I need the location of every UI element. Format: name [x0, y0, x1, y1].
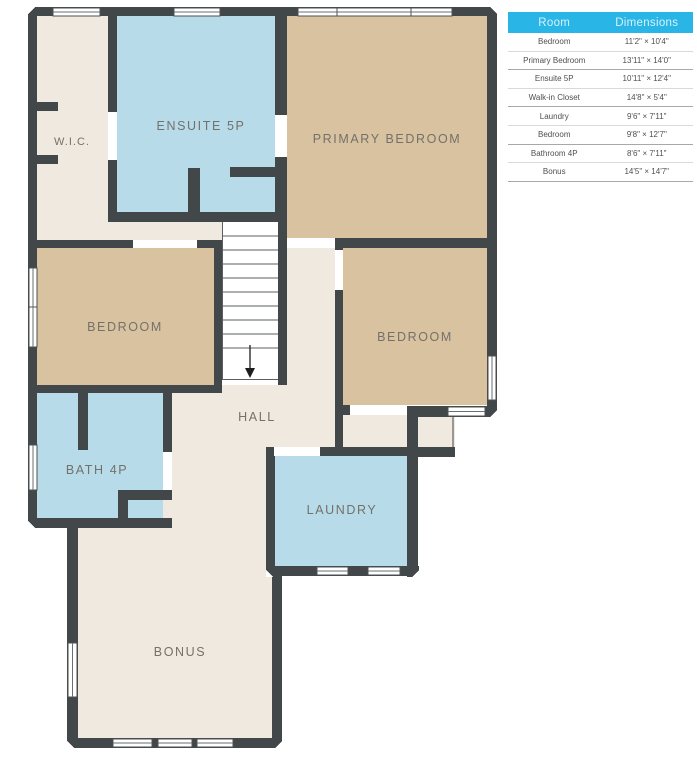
label-wic: W.I.C.	[54, 136, 90, 148]
table-row: Laundry 9'6" × 7'11"	[508, 107, 693, 126]
wall-wic-ensuite	[108, 7, 117, 213]
dimensions-table: Room Dimensions Bedroom 11'2" × 10'4" Pr…	[508, 12, 693, 182]
row-dimensions: 9'6" × 7'11"	[601, 112, 694, 121]
table-row: Ensuite 5P 10'11" × 12'4"	[508, 70, 693, 89]
floor-notch-opening	[163, 500, 172, 518]
wall-laundry-left	[266, 447, 275, 577]
wall-wic-stub-b	[33, 155, 58, 164]
floor-closet-b	[418, 417, 455, 450]
row-dimensions: 8'6" × 7'11"	[601, 149, 694, 158]
door-bedroom-right	[335, 250, 343, 290]
floor-wic	[37, 16, 108, 240]
wall-laundry-top-b	[320, 447, 419, 456]
floor-hall-column	[287, 248, 335, 448]
wall-bath-notch-top	[118, 490, 172, 500]
row-room: Bonus	[508, 167, 601, 176]
wall-laundry-right	[407, 407, 418, 577]
wall-wic-stub-a	[33, 102, 58, 111]
wall-stairwell-right	[278, 212, 287, 385]
label-hall: HALL	[238, 410, 276, 424]
label-bath: BATH 4P	[66, 463, 128, 477]
row-room: Bedroom	[508, 130, 601, 139]
wall-ensuite-stub-vertical	[188, 168, 200, 217]
header-room: Room	[508, 17, 601, 29]
row-room: Walk-in Closet	[508, 93, 601, 102]
wall-bath-bottom	[28, 518, 172, 528]
wall-outer-right	[487, 7, 497, 417]
table-row: Walk-in Closet 14'8" × 5'4"	[508, 89, 693, 108]
wall-bedroom-right-left-b	[335, 290, 343, 455]
door-bedroom-left	[133, 240, 197, 248]
row-room: Ensuite 5P	[508, 74, 601, 83]
label-laundry: LAUNDRY	[307, 503, 378, 517]
row-dimensions: 9'8" × 12'7"	[601, 130, 694, 139]
floor-bedroom-left	[37, 248, 214, 385]
row-room: Laundry	[508, 112, 601, 121]
floor-closet-a	[343, 415, 407, 447]
table-row: Bathroom 4P 8'6" × 7'11"	[508, 145, 693, 164]
wall-bonus-right	[272, 566, 282, 748]
wall-bath-stub	[78, 393, 88, 450]
label-bonus: BONUS	[154, 645, 206, 659]
table-row: Primary Bedroom 13'11" × 14'0"	[508, 52, 693, 71]
table-row: Bedroom 9'8" × 12'7"	[508, 126, 693, 145]
wall-bath-notch-left	[118, 500, 128, 518]
dimensions-table-header: Room Dimensions	[508, 12, 693, 33]
row-dimensions: 14'5" × 14'7"	[601, 167, 694, 176]
door-bath	[163, 452, 172, 490]
label-bedroom-left: BEDROOM	[87, 320, 163, 334]
floor-plan-page: W.I.C. ENSUITE 5P PRIMARY BEDROOM BEDROO…	[0, 0, 697, 768]
wall-bedroom-left-bottom	[28, 385, 222, 393]
label-bedroom-right: BEDROOM	[377, 330, 453, 344]
table-row: Bonus 14'5" × 14'7"	[508, 163, 693, 182]
door-laundry	[274, 447, 320, 456]
floor-bonus	[78, 528, 272, 738]
wall-bedroom-right-left-a	[335, 238, 343, 250]
wall-bedroom-right-bottom-a	[335, 405, 350, 415]
floor-primary-bedroom	[287, 16, 487, 238]
table-row: Bedroom 11'2" × 10'4"	[508, 33, 693, 52]
label-ensuite: ENSUITE 5P	[157, 119, 246, 133]
wall-laundry-top-a	[266, 447, 274, 456]
row-room: Bedroom	[508, 37, 601, 46]
floor-landing	[37, 222, 222, 240]
row-dimensions: 13'11" × 14'0"	[601, 56, 694, 65]
door-closet-a	[350, 405, 407, 415]
row-dimensions: 11'2" × 10'4"	[601, 37, 694, 46]
wall-bonus-left	[67, 523, 78, 748]
row-room: Primary Bedroom	[508, 56, 601, 65]
door-primary-bedroom	[287, 238, 335, 248]
row-room: Bathroom 4P	[508, 149, 601, 158]
wall-closet-b-bottom	[407, 447, 455, 457]
door-wic	[108, 112, 117, 160]
staircase	[222, 222, 278, 380]
row-dimensions: 14'8" × 5'4"	[601, 93, 694, 102]
label-primary-bedroom: PRIMARY BEDROOM	[313, 132, 462, 146]
row-dimensions: 10'11" × 12'4"	[601, 74, 694, 83]
door-ensuite-primary	[275, 115, 287, 157]
wall-primary-bottom	[335, 238, 487, 248]
header-dimensions: Dimensions	[601, 17, 694, 29]
wall-bath-right-a	[163, 393, 172, 452]
wall-bedroom-left-right	[214, 240, 222, 393]
wall-ensuite-stub-horizontal	[230, 167, 275, 177]
wall-bedroom-left-top-a	[28, 240, 133, 248]
floor-bedroom-right	[343, 248, 487, 405]
